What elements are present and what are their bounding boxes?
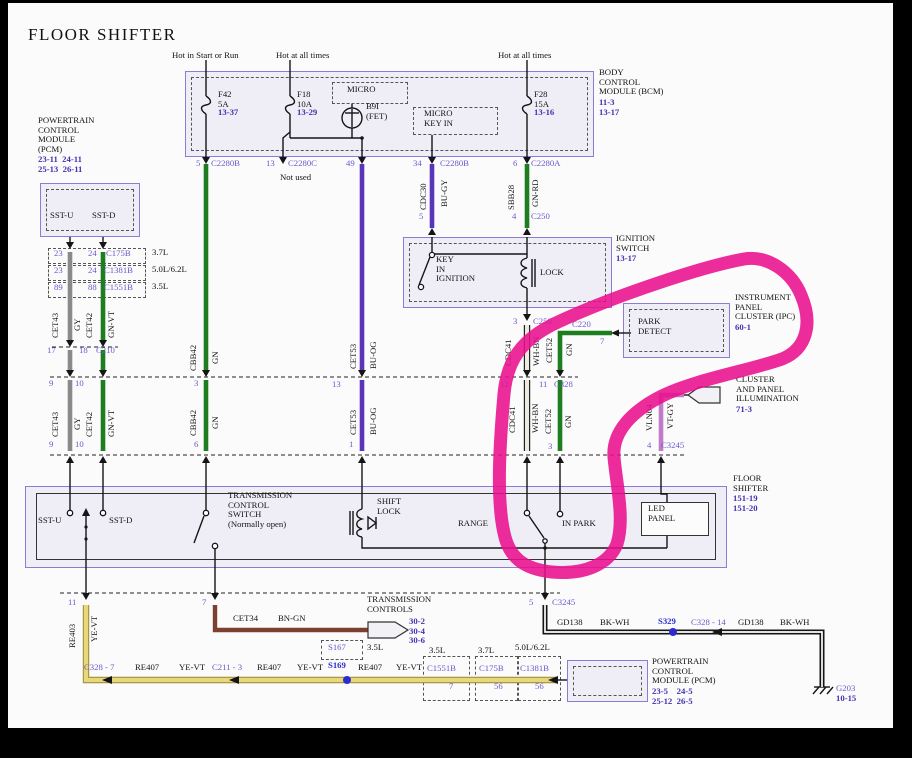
wire-yevt-1: YE-VT	[179, 663, 205, 673]
pin-5-bot: 5	[529, 598, 533, 608]
ipc-name: INSTRUMENT PANEL CLUSTER (IPC)	[735, 293, 795, 322]
bcm-refs: 11-3 13-17	[599, 98, 619, 117]
fs-name: FLOOR SHIFTER	[733, 474, 768, 493]
eng-35l-s167: 3.5L	[367, 643, 383, 653]
eng-35l-b: 3.5L	[429, 646, 445, 656]
eng-37l-b: 3.7L	[478, 646, 494, 656]
wire-cet43-u: CET43	[51, 313, 61, 338]
illum-name: CLUSTER AND PANEL ILLUMINATION	[736, 375, 799, 404]
b9i-fet-label: B9I (FET)	[366, 102, 387, 121]
pin-12-c328: 12	[500, 380, 509, 390]
hot-all-times-1: Hot at all times	[276, 51, 329, 61]
wire-yevt-0: YE-VT	[90, 616, 100, 642]
page-title: FLOOR SHIFTER	[28, 30, 176, 40]
wire-yevt-2: YE-VT	[297, 663, 323, 673]
conn-c175b: C175B	[106, 249, 131, 259]
hot-all-times-2: Hot at all times	[498, 51, 551, 61]
conn-c220: C220	[572, 320, 591, 330]
wire-gn-u1: GN	[211, 351, 221, 364]
pin-49: 49	[346, 159, 355, 169]
illum-ref: 71-3	[736, 405, 752, 415]
wire-bngn: BN-GN	[278, 614, 306, 624]
pin-34: 34	[413, 159, 422, 169]
wire-cet43-l: CET43	[51, 412, 61, 437]
pin-9-c3245: 9	[49, 440, 53, 450]
lock-label: LOCK	[540, 268, 564, 278]
pin-7-c220: 7	[600, 337, 604, 347]
wire-cet53-l: CET53	[349, 410, 359, 435]
wire-buog-u: BU-OG	[369, 341, 379, 369]
fuse-f28-ref: 13-16	[534, 108, 554, 118]
led-panel-label: LED PANEL	[648, 504, 675, 523]
wire-re407-1: RE407	[135, 663, 159, 673]
eng-37l-a: 3.7L	[152, 248, 168, 258]
wire-bugy: BU-GY	[440, 179, 450, 207]
wire-bkwh-2: BK-WH	[780, 618, 809, 628]
pin-9-c328: 9	[49, 379, 53, 389]
wire-bkwh-1: BK-WH	[600, 618, 629, 628]
eng-50l-b: 5.0L/6.2L	[515, 643, 550, 653]
wire-buog-l: BU-OG	[369, 407, 379, 435]
pin-6-c3245: 6	[194, 440, 198, 450]
conn-c2280a: C2280A	[531, 159, 560, 169]
pin-11-c328: 11	[539, 380, 547, 390]
micro-label: MICRO	[347, 85, 375, 95]
shift-lock-label: SHIFT LOCK	[377, 497, 401, 516]
pin-b-23: 23	[54, 266, 63, 276]
pin-7-bot: 7	[202, 598, 206, 608]
fs-refs: 151-19 151-20	[733, 494, 758, 513]
pin-a-23: 23	[54, 249, 63, 259]
park-detect: PARK DETECT	[638, 317, 671, 336]
pcm-top-name: POWERTRAIN CONTROL MODULE (PCM)	[38, 116, 94, 154]
micro-key-in-label: MICRO KEY IN	[424, 109, 453, 128]
conn-c1381b-1: C1381B	[104, 266, 133, 276]
wire-sbb28: SBB28	[507, 185, 517, 210]
ipc-ref: 60-1	[735, 323, 751, 333]
bcm-name: BODY CONTROL MODULE (BCM)	[599, 68, 663, 97]
wire-gn-l2: GN	[564, 415, 574, 428]
wire-gnvt-l: GN-VT	[107, 410, 117, 437]
pin-7-c1551b: 7	[449, 682, 453, 692]
label-layer: FLOOR SHIFTERHot in Start or RunHot at a…	[0, 0, 912, 758]
wire-gnvt-u: GN-VT	[107, 311, 117, 338]
wire-vln04: VLN04	[645, 404, 655, 431]
wire-cdc41-l: CDC41	[508, 406, 518, 433]
wire-gn-l1: GN	[211, 416, 221, 429]
conn-c250-bot: C250	[533, 317, 552, 327]
pcm-sst-d: SST-D	[92, 211, 115, 221]
pin-4-c250: 4	[512, 212, 516, 222]
conn-c328-14: C328 - 14	[691, 618, 726, 628]
conn-c2280b-2: C2280B	[440, 159, 469, 169]
wiring-diagram: FLOOR SHIFTERHot in Start or RunHot at a…	[0, 0, 912, 758]
pin-10-c328: 10	[75, 379, 84, 389]
pcm-sst-u: SST-U	[50, 211, 73, 221]
pin-56-c175b: 56	[494, 682, 503, 692]
pin-56-c1381b: 56	[535, 682, 544, 692]
splice-s167: S167	[328, 643, 346, 653]
range-label: RANGE	[458, 519, 488, 529]
pcm-bot-refs: 23-5 24-5 25-12 26-5	[652, 687, 693, 706]
conn-c328-7: C328 - 7	[84, 663, 114, 673]
key-in-ignition: KEY IN IGNITION	[436, 255, 475, 284]
wire-re407-3: RE407	[358, 663, 382, 673]
wire-cdc41-u: CDC41	[504, 339, 514, 366]
wire-vtgy: VT-GY	[666, 403, 676, 429]
conn-c1551b-2: C1551B	[427, 664, 456, 674]
pin-11-bot: 11	[68, 598, 76, 608]
pin-1-c3245: 1	[349, 440, 353, 450]
conn-c3245-bot: C3245	[552, 598, 575, 608]
pcm-top-refs: 23-11 24-11 25-13 26-11	[38, 155, 82, 174]
wire-gd138-1: GD138	[557, 618, 583, 628]
wire-cbb42-l: CBB42	[189, 410, 199, 436]
pin-3-c328: 3	[194, 379, 198, 389]
wire-whbn-u: WH-BN	[532, 337, 542, 366]
conn-c3245-top: C3245	[661, 441, 684, 451]
wire-whbn-l: WH-BN	[531, 404, 541, 433]
conn-c175b-2: C175B	[479, 664, 504, 674]
wire-gd138-2: GD138	[738, 618, 764, 628]
eng-35l-a: 3.5L	[152, 282, 168, 292]
wire-yevt-3: YE-VT	[396, 663, 422, 673]
pin-18: 18	[79, 346, 88, 356]
pin-c-88: 88	[88, 283, 97, 293]
pin-4-c3245: 4	[647, 441, 651, 451]
wire-cet53-u: CET53	[349, 344, 359, 369]
ign-ref: 13-17	[616, 254, 636, 264]
pin-a-24: 24	[88, 249, 97, 259]
pin-3-c3245: 3	[548, 442, 552, 452]
conn-c2280c: C2280C	[288, 159, 317, 169]
pin-13-c2280c: 13	[266, 159, 275, 169]
wire-re407-2: RE407	[257, 663, 281, 673]
pcm-bot-name: POWERTRAIN CONTROL MODULE (PCM)	[652, 657, 715, 686]
in-park-label: IN PARK	[562, 519, 596, 529]
splice-s329: S329	[658, 617, 676, 627]
wire-gy-l: GY	[73, 417, 83, 430]
wire-gnrd: GN-RD	[531, 179, 541, 207]
wire-cet52-l: CET52	[544, 409, 554, 434]
conn-c1551b-1: C1551B	[104, 283, 133, 293]
pin-13-c328: 13	[332, 380, 341, 390]
fuse-f42-ref: 13-37	[218, 108, 238, 118]
conn-c2280b-1: C2280B	[211, 159, 240, 169]
shifter-sst-u: SST-U	[38, 516, 61, 526]
shifter-sst-d: SST-D	[109, 516, 132, 526]
splice-s169: S169	[328, 661, 346, 671]
pin-5-c250: 5	[419, 212, 423, 222]
not-used: Not used	[280, 173, 311, 183]
pin-b-24: 24	[88, 266, 97, 276]
tc-name: TRANSMISSION CONTROLS	[367, 595, 431, 614]
wire-cet42-u: CET42	[85, 313, 95, 338]
wire-cet52-u: CET52	[545, 338, 555, 363]
pin-6-c2280a: 6	[513, 159, 517, 169]
pin-10-c3245: 10	[75, 440, 84, 450]
wire-cbb42-u: CBB42	[189, 345, 199, 371]
wire-gy-u: GY	[73, 318, 83, 331]
ground-g203-ref: 10-15	[836, 694, 856, 704]
pin-17: 17	[47, 346, 56, 356]
wire-cet34: CET34	[233, 614, 258, 624]
conn-c250-top: C250	[531, 212, 550, 222]
conn-c211-3: C211 - 3	[212, 663, 242, 673]
conn-c1381b-2: C1381B	[520, 664, 549, 674]
pin-5-c2280b: 5	[196, 159, 200, 169]
hot-start-run: Hot in Start or Run	[172, 51, 239, 61]
eng-50l-a: 5.0L/6.2L	[152, 265, 187, 275]
wire-cdc30: CDC30	[419, 183, 429, 210]
conn-c210: C210	[96, 346, 115, 356]
pin-3-c250: 3	[513, 317, 517, 327]
conn-c328: C328	[554, 380, 573, 390]
pin-c-89: 89	[54, 283, 63, 293]
fuse-f18-ref: 13-29	[297, 108, 317, 118]
tc-refs: 30-2 30-4 30-6	[409, 617, 425, 646]
wire-gn-u2: GN	[565, 343, 575, 356]
ign-name: IGNITION SWITCH	[616, 234, 655, 253]
wire-cet42-l: CET42	[85, 412, 95, 437]
tcs-label: TRANSMISSION CONTROL SWITCH (Normally op…	[228, 491, 292, 529]
wire-re403: RE403	[68, 624, 78, 648]
